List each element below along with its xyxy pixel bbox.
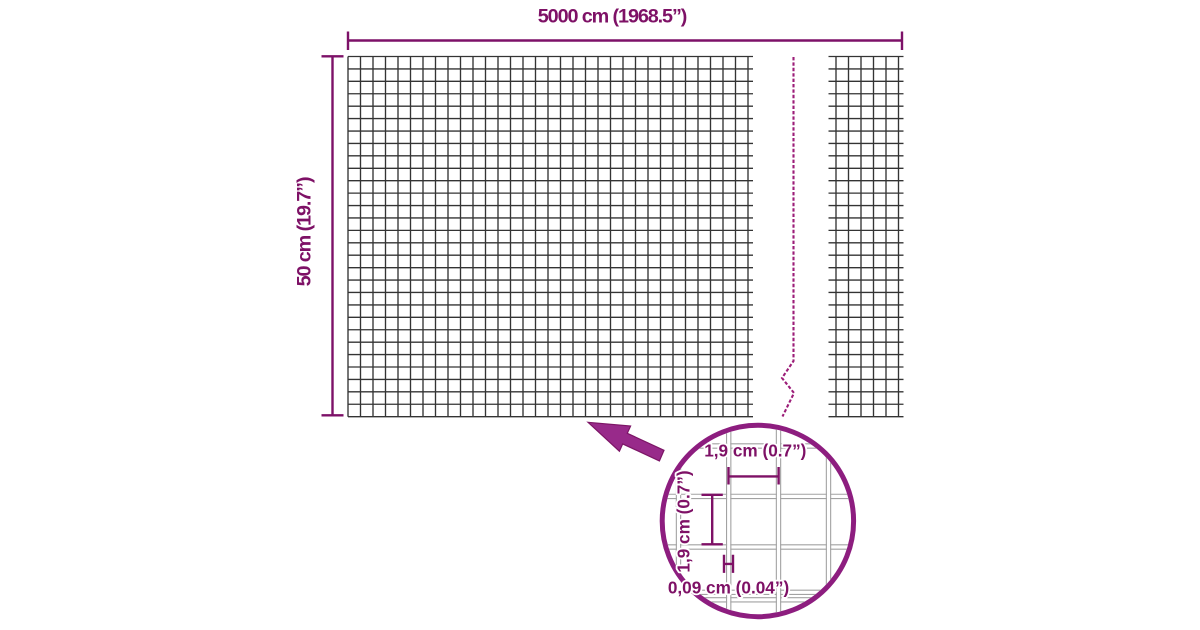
svg-text:1,9 cm (0.7”): 1,9 cm (0.7”) — [674, 470, 694, 572]
svg-text:5000 cm (1968.5”): 5000 cm (1968.5”) — [538, 6, 687, 28]
svg-text:0,09 cm (0.04”): 0,09 cm (0.04”) — [668, 578, 789, 598]
svg-text:1,9 cm (0.7”): 1,9 cm (0.7”) — [704, 441, 806, 461]
svg-text:50 cm (19.7”): 50 cm (19.7”) — [294, 177, 316, 286]
